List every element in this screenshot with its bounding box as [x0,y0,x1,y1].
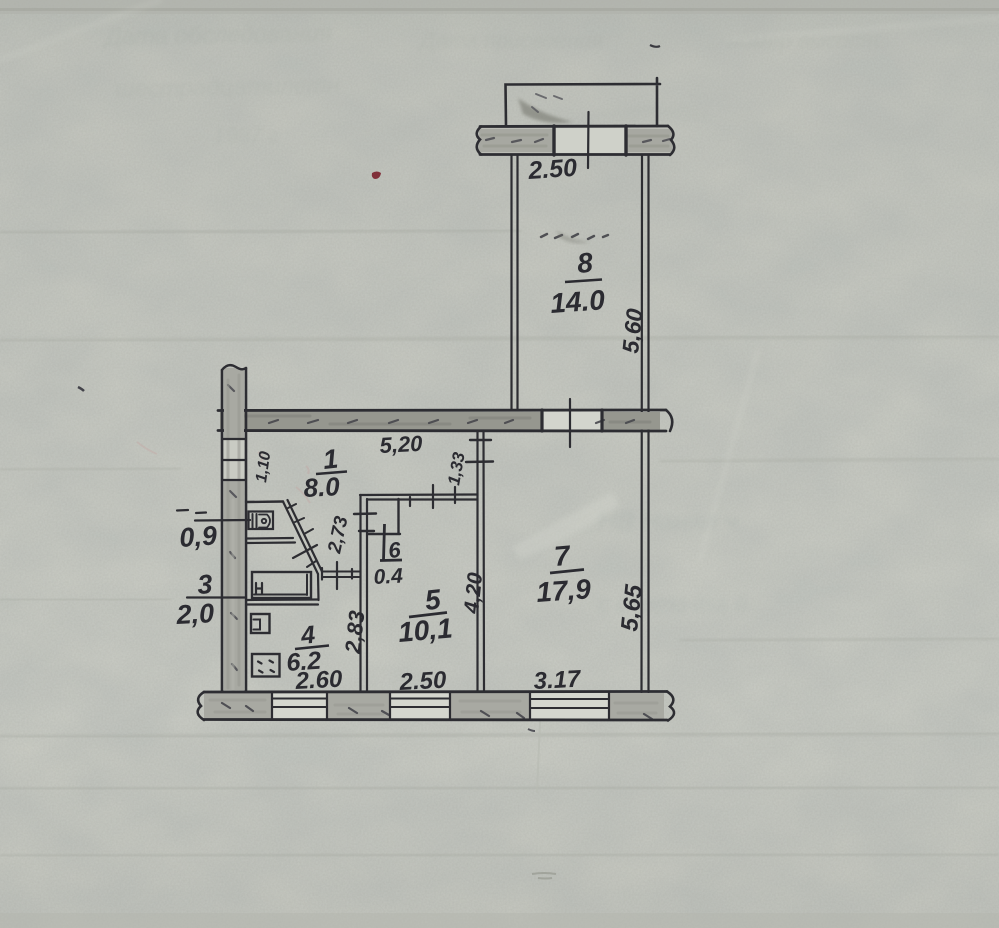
svg-text:1987 г: 1987 г [213,123,279,148]
svg-text:2,83: 2,83 [340,609,369,655]
svg-text:5,60: 5,60 [617,307,648,354]
svg-text:5,20: 5,20 [379,431,424,458]
svg-text:8.0: 8.0 [303,471,341,503]
svg-text:3: 3 [196,569,213,600]
svg-text:2.50: 2.50 [526,154,578,185]
svg-text:0,9: 0,9 [178,520,218,553]
svg-text:8: 8 [576,247,595,279]
svg-text:4,20: 4,20 [460,571,487,615]
svg-text:номер высотн: номер высотн [728,28,879,53]
svg-text:шестрадцатилетн: шестрадцатилетн [115,72,341,103]
svg-text:1: 1 [321,444,339,475]
svg-text:НВ Нанял ч.: НВ Нанял ч. [598,506,745,536]
svg-text:14.0: 14.0 [549,284,606,319]
svg-text:0.4: 0.4 [373,564,404,589]
svg-text:2.60: 2.60 [294,666,344,695]
svg-text:ш: ш [0,588,18,613]
svg-text:Дата обследования: Дата обследования [102,20,332,51]
svg-text:5,65: 5,65 [616,583,648,633]
svg-text:2,0: 2,0 [175,598,215,630]
svg-text:2.50: 2.50 [398,667,448,696]
svg-text:Дата присвоения: Дата присвоения [417,28,604,53]
svg-text:17,9: 17,9 [535,573,592,608]
svg-text:3.17: 3.17 [533,665,583,694]
svg-text:10,1: 10,1 [397,612,454,648]
svg-text:шиаполнущ: шиаполнущ [600,101,710,123]
svg-text:4: 4 [299,621,317,650]
